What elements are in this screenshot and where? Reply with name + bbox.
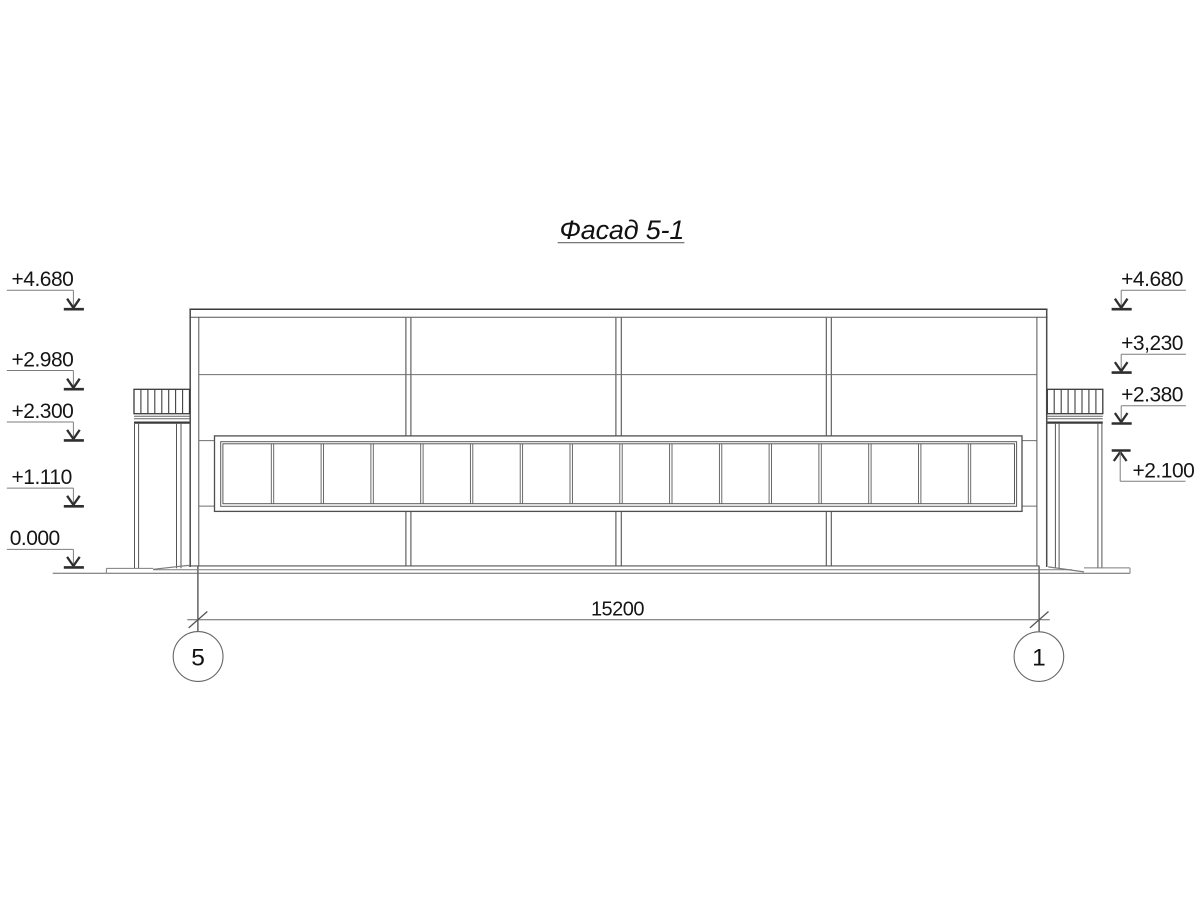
svg-text:0.000: 0.000 xyxy=(10,527,60,550)
svg-text:15200: 15200 xyxy=(591,598,644,620)
svg-text:+4.680: +4.680 xyxy=(12,268,74,291)
svg-text:+2.100: +2.100 xyxy=(1133,460,1195,483)
svg-text:+2.300: +2.300 xyxy=(12,400,74,423)
svg-text:+4.680: +4.680 xyxy=(1121,268,1183,291)
svg-text:+2.980: +2.980 xyxy=(12,348,74,371)
svg-text:+3,230: +3,230 xyxy=(1121,332,1183,355)
svg-text:1: 1 xyxy=(1032,644,1046,671)
svg-text:Фасад 5-1: Фасад 5-1 xyxy=(560,215,685,245)
svg-text:+2.380: +2.380 xyxy=(1121,384,1183,407)
svg-text:5: 5 xyxy=(191,644,205,671)
svg-text:+1.110: +1.110 xyxy=(12,466,72,489)
